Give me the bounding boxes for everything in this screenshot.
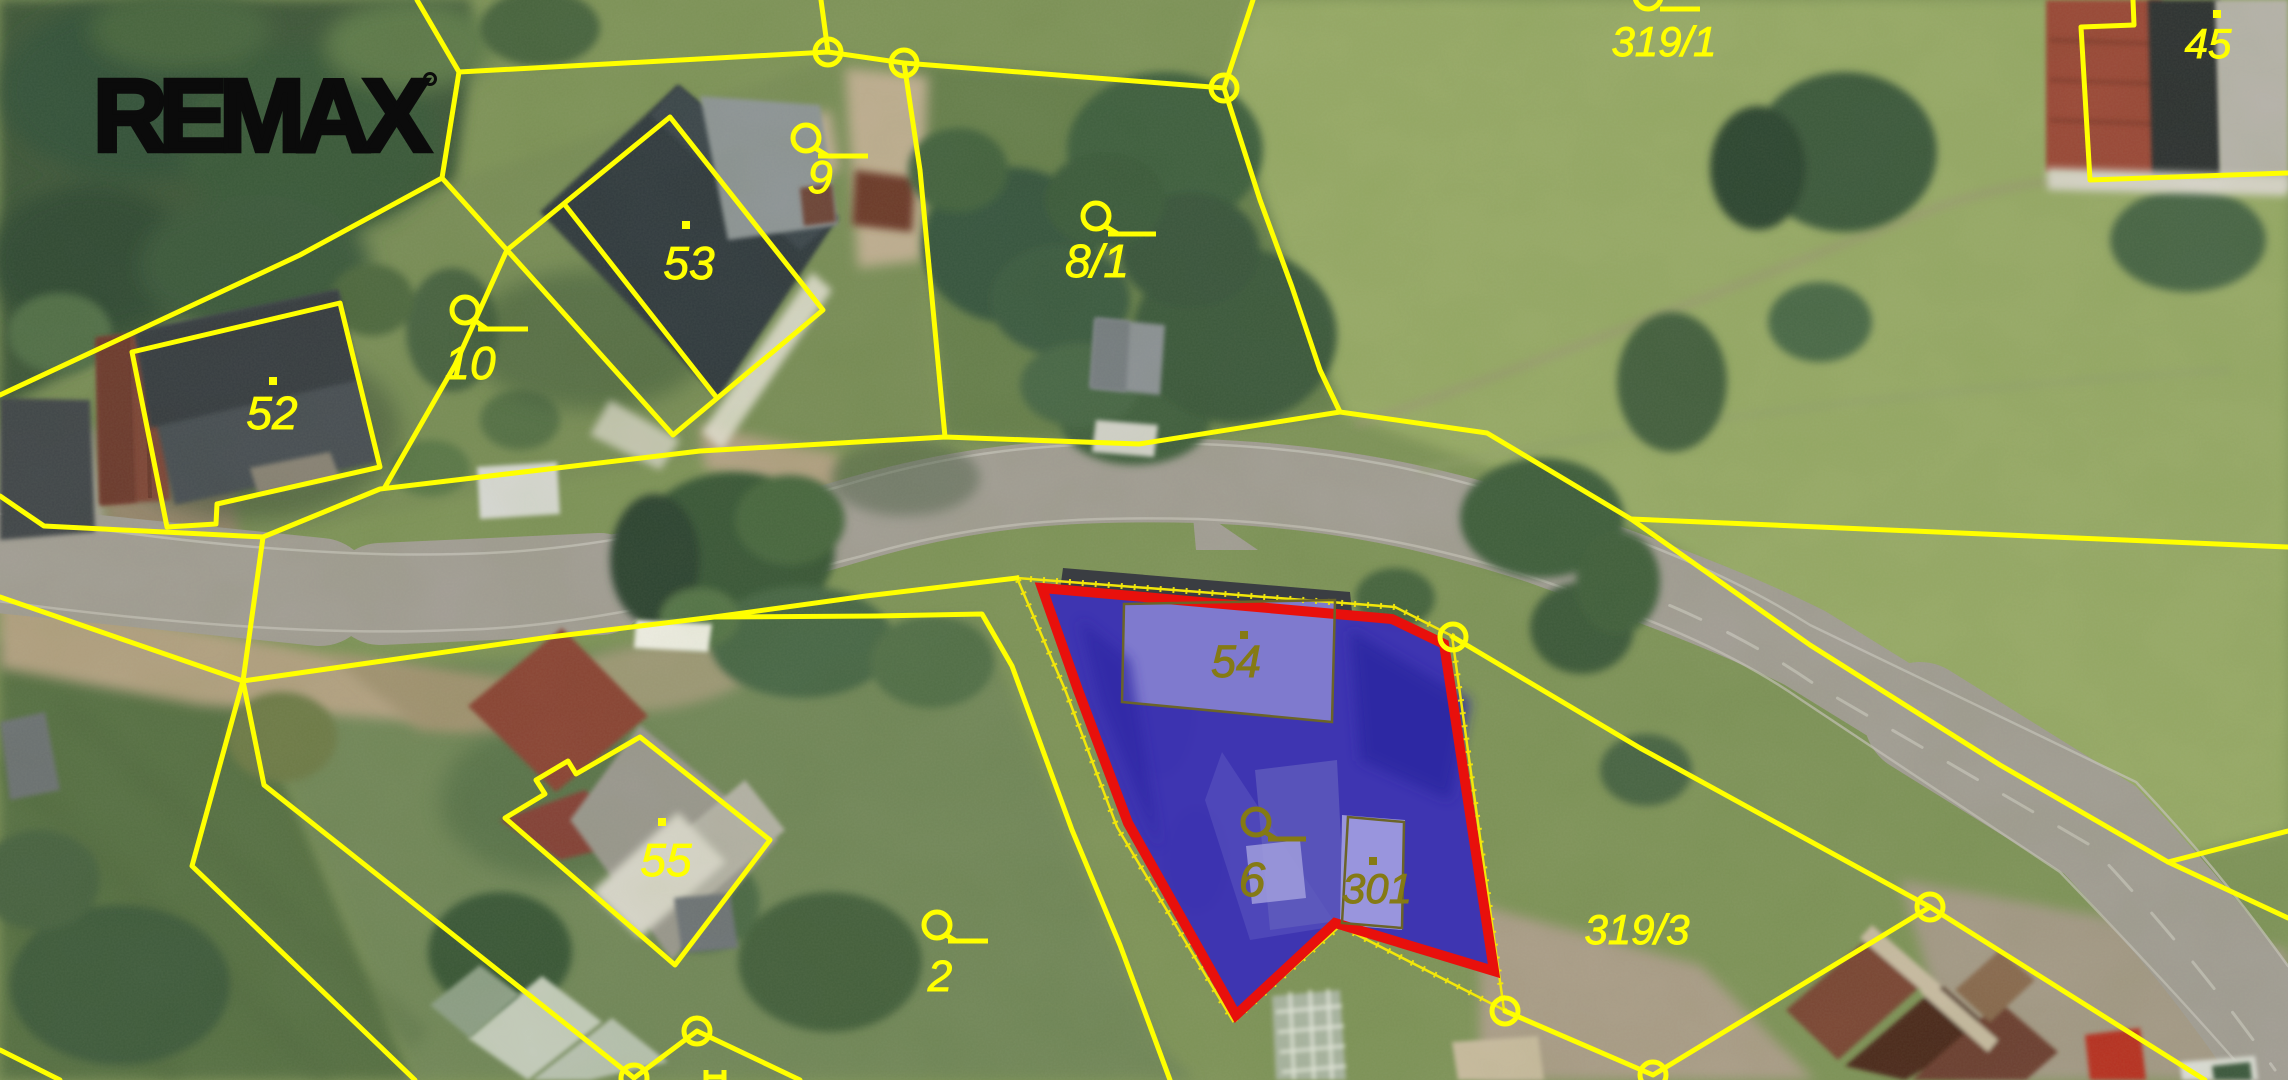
svg-text:10: 10: [444, 337, 496, 389]
svg-text:55: 55: [640, 834, 692, 886]
svg-text:52: 52: [246, 387, 297, 439]
svg-text:8/1: 8/1: [1065, 235, 1129, 287]
svg-text:54: 54: [1211, 636, 1261, 687]
svg-text:2: 2: [927, 952, 952, 1001]
svg-text:319/3: 319/3: [1584, 906, 1689, 953]
svg-text:45: 45: [2185, 20, 2232, 67]
svg-text:53: 53: [663, 237, 715, 289]
svg-text:REMAX: REMAX: [93, 58, 430, 173]
svg-text:301: 301: [1342, 865, 1412, 912]
svg-text:9: 9: [807, 151, 833, 203]
svg-text:319/1: 319/1: [1611, 18, 1716, 65]
svg-text:6: 6: [1239, 854, 1266, 907]
